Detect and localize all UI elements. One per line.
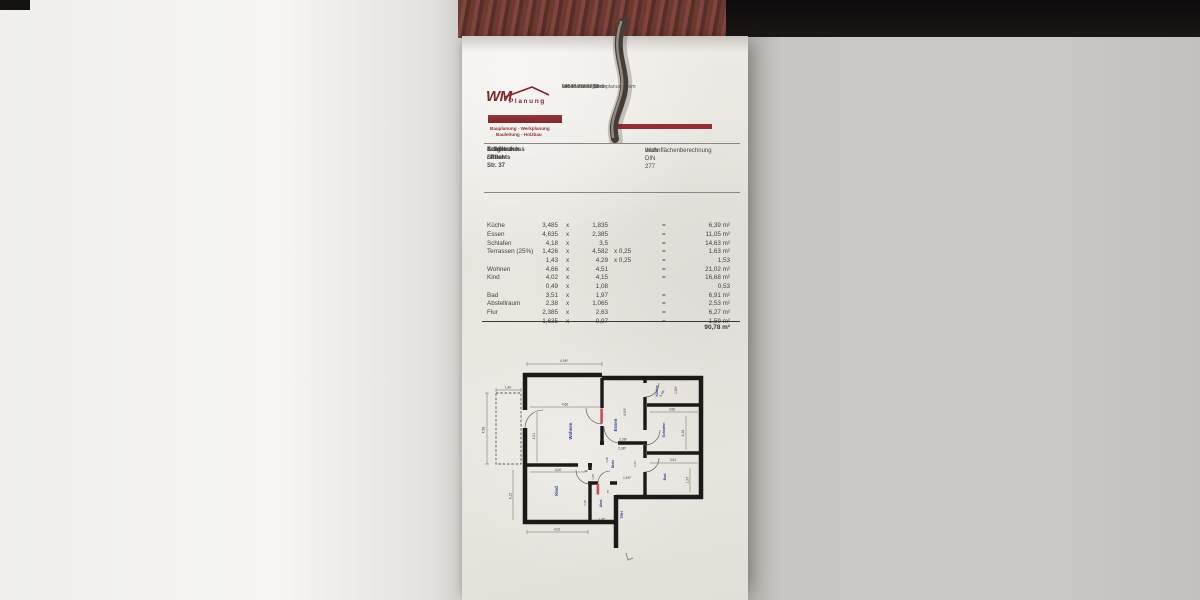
dim-label: 2,63	[633, 461, 637, 467]
logo-roof-icon	[504, 85, 550, 99]
area-value: 0,53	[674, 283, 730, 290]
room-label-bad: Bad	[663, 474, 667, 481]
dim-label: 1,97	[686, 477, 690, 484]
room-label-kind: Kind	[554, 486, 559, 496]
dim-label: 1,08	[591, 474, 595, 480]
equals-sign: =	[662, 274, 666, 281]
dim-b: 4,15	[570, 274, 608, 281]
planung-logo-text: Planung	[509, 98, 546, 105]
dim-label: 1,83⁵	[674, 385, 678, 394]
equals-sign: =	[662, 266, 666, 273]
equals-sign: =	[662, 309, 666, 316]
dim-label: 2,38⁵	[619, 438, 628, 442]
dim-b: 2,63	[570, 309, 608, 316]
area-value: 11,05 m²	[674, 231, 730, 238]
dim-label: 4,66	[562, 403, 569, 407]
equals-sign: =	[662, 222, 666, 229]
dim-label: 1,63⁵	[623, 476, 632, 480]
room-label-essen: Essen	[613, 418, 618, 431]
times-sign: x	[566, 292, 569, 299]
tagline-2: Bauleitung - Holzbau	[496, 132, 542, 137]
fabric-surface	[458, 0, 734, 38]
table-row: Abstellraum2,38x1,065=2,53 m²	[462, 300, 748, 308]
room-label-kueche: Küche	[655, 386, 659, 397]
table-row: 1,43x4,29x 0,25=1,53	[462, 257, 748, 265]
dim-b: 4,582	[570, 248, 608, 255]
dim-a: 4,02	[520, 274, 558, 281]
dim-b: 2,385	[570, 231, 608, 238]
total-line	[482, 321, 740, 322]
pen-mark	[626, 553, 633, 560]
adjacent-page	[0, 0, 462, 600]
dim-a: 4,18	[520, 240, 558, 247]
dim-a: 3,485	[520, 222, 558, 229]
dim-a: 4,66	[520, 266, 558, 273]
times-sign: x	[566, 257, 569, 264]
dim-a: 1,426	[520, 248, 558, 255]
area-value: 14,63 m²	[674, 240, 730, 247]
times-sign: x	[566, 248, 569, 255]
door-leaf-marker	[600, 409, 603, 424]
dim-b: 1,08	[570, 283, 608, 290]
times-sign: x	[566, 231, 569, 238]
door-arcs	[525, 383, 660, 484]
dim-label: 4,51	[532, 433, 536, 440]
table-row: Essen4,635x2,385=11,05 m²	[462, 231, 748, 239]
total-area: 90,78 m²	[674, 324, 730, 331]
dim-b: 1,97	[570, 292, 608, 299]
times-sign: x	[566, 222, 569, 229]
dim-b: 1,065	[570, 300, 608, 307]
factor: x 0,25	[614, 248, 656, 255]
equals-sign: =	[662, 292, 666, 299]
table-row: Flur2,385x2,63=6,27 m²	[462, 309, 748, 317]
times-sign: x	[566, 266, 569, 273]
dark-corner	[0, 0, 30, 10]
factor: x 0,25	[614, 257, 656, 264]
dim-b: 1,835	[570, 222, 608, 229]
room-label-abst: Abst.	[599, 499, 603, 508]
dim-label: 4,98⁵	[560, 359, 569, 363]
interior-walls	[525, 376, 701, 524]
dim-a: 3,51	[520, 292, 558, 299]
table-row: Küche3,485x1,835=6,39 m²	[462, 222, 748, 230]
dim-label: 2,38⁵	[618, 447, 627, 451]
dim-label: ,75	[606, 490, 610, 495]
room-label-diele: Diele	[611, 460, 615, 469]
dim-label: 4,00	[555, 468, 562, 472]
area-value: 1,63 m²	[674, 248, 730, 255]
equals-sign: =	[662, 240, 666, 247]
dim-label: 4,02	[554, 528, 561, 532]
door-leaf-marker	[597, 484, 600, 495]
dim-a: 0,49	[520, 283, 558, 290]
dim-label: 4,63⁵	[623, 407, 627, 416]
dim-a: 2,385	[520, 309, 558, 316]
project-unit: Erdgeschoss / Rechts	[487, 146, 525, 162]
table-row: Schlafen4,18x3,5=14,63 m²	[462, 240, 748, 248]
equals-sign: =	[662, 300, 666, 307]
binding-cord	[598, 18, 650, 143]
table-row: 0,49x1,080,53	[462, 283, 748, 291]
dim-label: 2,38	[583, 500, 587, 506]
times-sign: x	[566, 240, 569, 247]
dim-label: ,49	[583, 469, 588, 473]
dim-label: 1,06⁵	[598, 517, 606, 521]
tagline-1: Bauplanung - Werkplanung	[490, 126, 550, 131]
document-subtitle: nach DIN 277	[645, 147, 658, 171]
room-label-trh: TRH	[620, 511, 624, 519]
floor-plan: 4,98⁵ 1,40 4,58 4,66 4,51 4,63⁵ 2,38⁵ 2,…	[480, 350, 720, 565]
dim-label: 4,58	[482, 427, 486, 434]
equals-sign: =	[662, 257, 666, 264]
table-row: Bad3,51x1,97=6,91 m²	[462, 292, 748, 300]
times-sign: x	[566, 300, 569, 307]
area-value: 6,91 m²	[674, 292, 730, 299]
table-row: Wohnen4,66x4,51=21,02 m²	[462, 266, 748, 274]
table-row: Kind4,02x4,15=16,68 m²	[462, 274, 748, 282]
area-value: 6,27 m²	[674, 309, 730, 316]
dim-a: 4,635	[520, 231, 558, 238]
table-surface-right	[748, 0, 1200, 600]
area-value: 6,39 m²	[674, 222, 730, 229]
area-value: 21,02 m²	[674, 266, 730, 273]
dim-a: 1,43	[520, 257, 558, 264]
dim-b: 3,5	[570, 240, 608, 247]
dim-label: 3,51	[670, 458, 677, 462]
dim-a: 2,38	[520, 300, 558, 307]
dim-b: 4,51	[570, 266, 608, 273]
dim-label: 4,18	[681, 430, 685, 437]
area-value: 1,53	[674, 257, 730, 264]
dim-label: 3,48⁵	[658, 389, 666, 398]
brand-bar-logo	[488, 115, 562, 123]
dim-label: 4,15	[509, 493, 513, 500]
divider-line-bottom	[484, 192, 740, 193]
equals-sign: =	[662, 248, 666, 255]
dim-label: 3,50	[669, 408, 676, 412]
equals-sign: =	[662, 231, 666, 238]
room-label-wohnen: Wohnen	[568, 422, 573, 439]
divider-line-top	[484, 143, 740, 144]
dim-label: 1,08	[605, 457, 609, 463]
times-sign: x	[566, 283, 569, 290]
dark-surface-strip	[726, 0, 1200, 37]
room-label-schlafen: Schlafen	[662, 423, 666, 438]
photo-of-document: WM Planung Bauplanung - Werkplanung Baul…	[0, 0, 1200, 600]
times-sign: x	[566, 274, 569, 281]
times-sign: x	[566, 309, 569, 316]
dim-label: 1,40	[505, 386, 512, 390]
area-value: 16,68 m²	[674, 274, 730, 281]
table-row: Terrassen (25%)1,426x4,582x 0,25=1,63 m²	[462, 248, 748, 256]
dim-b: 4,29	[570, 257, 608, 264]
terrace-outline	[496, 393, 521, 464]
area-value: 2,53 m²	[674, 300, 730, 307]
